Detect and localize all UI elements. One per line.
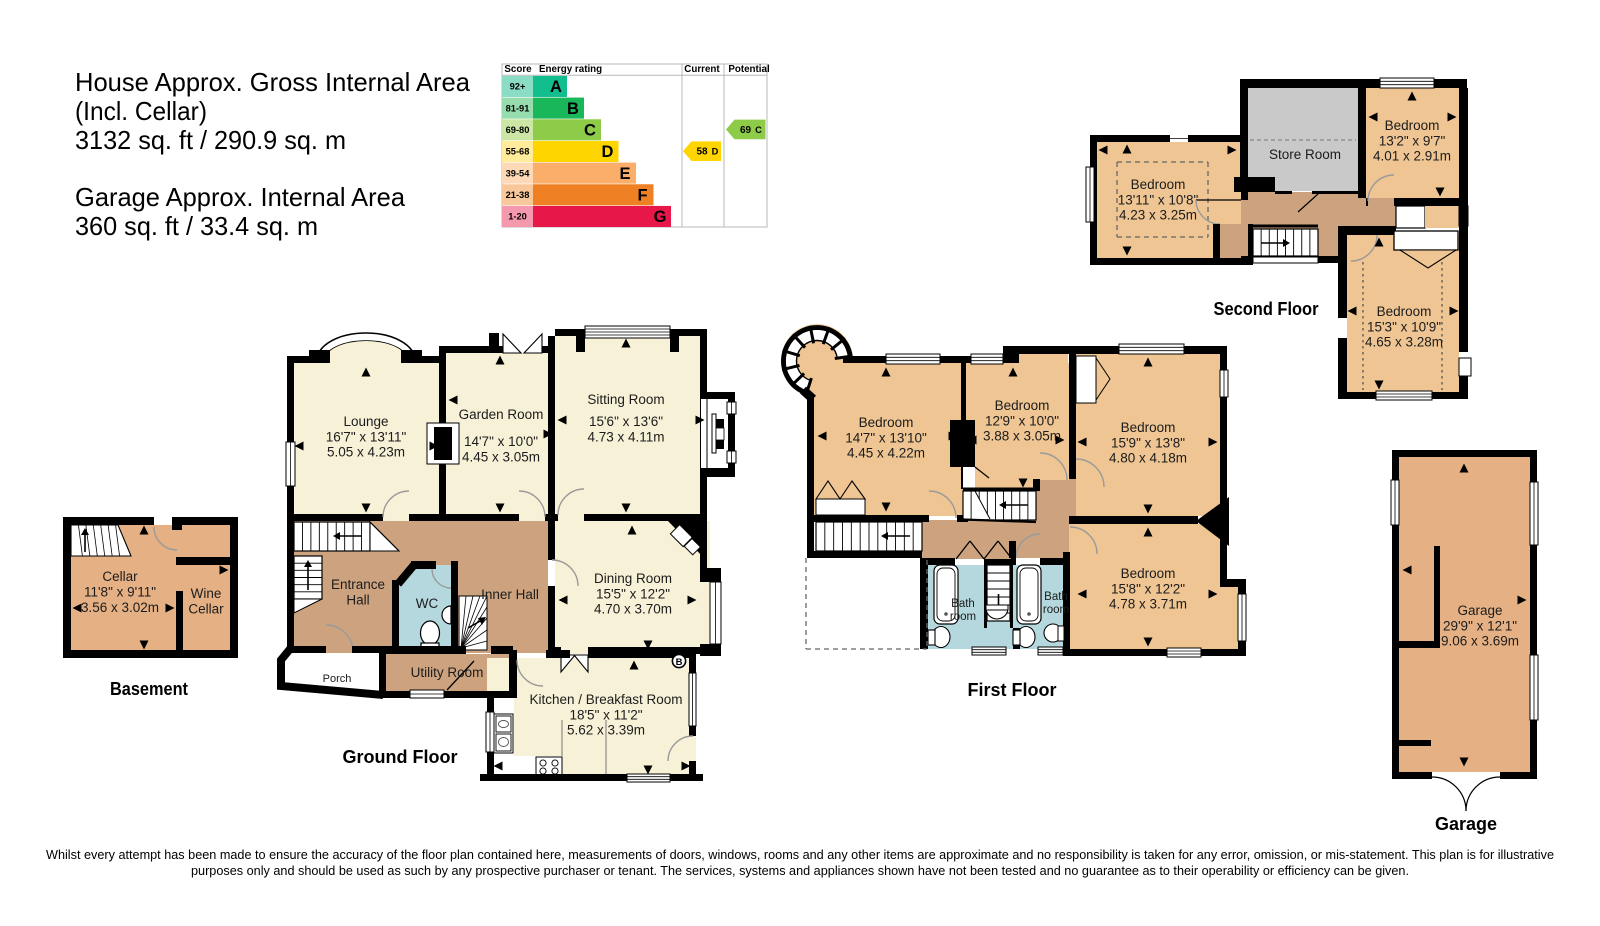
svg-text:Garage Approx. Internal Area: Garage Approx. Internal Area [75,182,406,212]
svg-text:F: F [637,186,647,204]
svg-text:Garage: Garage [1457,603,1502,618]
svg-text:purposes only and should be us: purposes only and should be used as such… [191,863,1409,878]
svg-text:room: room [1043,604,1069,616]
svg-text:Garage: Garage [1435,814,1497,834]
svg-text:4.45 x 4.22m: 4.45 x 4.22m [847,446,925,461]
svg-text:Bedroom: Bedroom [859,415,914,430]
svg-text:Wine: Wine [191,586,222,601]
svg-text:Cellar: Cellar [188,602,224,617]
svg-text:B: B [676,657,683,668]
svg-text:D: D [712,147,719,157]
svg-text:Inner Hall: Inner Hall [481,587,539,602]
svg-text:Bedroom: Bedroom [1385,118,1440,133]
svg-text:Bath: Bath [951,598,975,610]
svg-text:81-91: 81-91 [506,103,530,113]
svg-text:69-80: 69-80 [506,125,530,135]
svg-text:4.70 x 3.70m: 4.70 x 3.70m [594,602,672,617]
svg-text:Store Room: Store Room [1269,147,1341,162]
svg-text:15'9" x 13'8": 15'9" x 13'8" [1111,435,1185,450]
svg-text:16'7" x 13'11": 16'7" x 13'11" [326,429,407,444]
svg-text:Bedroom: Bedroom [1131,177,1186,192]
svg-text:3.56 x 3.02m: 3.56 x 3.02m [81,600,159,615]
svg-text:Basement: Basement [110,679,188,699]
svg-text:Sitting Room: Sitting Room [587,392,664,407]
svg-text:Score: Score [504,64,532,75]
svg-text:Energy rating: Energy rating [539,64,602,75]
svg-text:D: D [602,143,614,161]
svg-text:Whilst every attempt has been: Whilst every attempt has been made to en… [46,847,1554,862]
svg-text:39-54: 39-54 [506,168,531,178]
svg-text:G: G [654,208,667,226]
svg-text:360 sq. ft / 33.4 sq. m: 360 sq. ft / 33.4 sq. m [75,211,318,241]
svg-text:Current: Current [684,64,720,75]
svg-text:Second Floor: Second Floor [1214,299,1319,319]
svg-text:4.78 x 3.71m: 4.78 x 3.71m [1109,597,1187,612]
svg-text:14'7" x 13'10": 14'7" x 13'10" [845,430,927,445]
svg-text:3.88 x 3.05m: 3.88 x 3.05m [983,429,1061,444]
svg-text:Bedroom: Bedroom [1377,304,1432,319]
svg-text:B: B [567,100,579,118]
svg-text:13'11" x 10'8": 13'11" x 10'8" [1118,192,1199,207]
svg-text:Porch: Porch [323,673,352,685]
svg-text:Bedroom: Bedroom [995,398,1050,413]
svg-text:First Floor: First Floor [968,680,1057,700]
svg-text:4.23 x 3.25m: 4.23 x 3.25m [1119,208,1197,223]
svg-text:Potential: Potential [728,64,770,75]
svg-text:(Incl. Cellar): (Incl. Cellar) [75,96,207,126]
svg-text:A: A [550,78,562,96]
svg-text:Lounge: Lounge [343,414,388,429]
svg-text:4.65 x 3.28m: 4.65 x 3.28m [1365,335,1443,350]
svg-text:58: 58 [696,147,708,158]
svg-text:Bedroom: Bedroom [1121,566,1176,581]
svg-text:room: room [950,611,976,623]
svg-text:13'2" x 9'7": 13'2" x 9'7" [1379,133,1446,148]
svg-text:4.73 x 4.11m: 4.73 x 4.11m [587,429,664,444]
svg-text:C: C [584,121,596,139]
svg-text:4.45 x 3.05m: 4.45 x 3.05m [462,449,540,464]
svg-text:Hall: Hall [346,592,369,607]
svg-text:Entrance: Entrance [331,577,385,592]
svg-text:Garden Room: Garden Room [459,407,544,422]
svg-text:Utility Room: Utility Room [411,665,484,680]
svg-text:4.80 x 4.18m: 4.80 x 4.18m [1109,451,1187,466]
svg-text:Kitchen / Breakfast Room: Kitchen / Breakfast Room [529,692,682,707]
svg-text:92+: 92+ [510,82,526,92]
svg-text:Bedroom: Bedroom [1121,420,1176,435]
svg-text:9.06 x 3.69m: 9.06 x 3.69m [1441,634,1519,649]
svg-text:E: E [619,165,630,183]
svg-text:C: C [755,125,762,135]
svg-text:3132 sq. ft / 290.9 sq. m: 3132 sq. ft / 290.9 sq. m [75,125,346,155]
svg-text:5.05 x 4.23m: 5.05 x 4.23m [327,445,405,460]
svg-text:Cellar: Cellar [102,569,138,584]
svg-text:Dining Room: Dining Room [594,571,672,586]
svg-text:18'5" x 11'2": 18'5" x 11'2" [569,707,642,722]
svg-text:Bath: Bath [1044,591,1068,603]
svg-text:15'3" x 10'9": 15'3" x 10'9" [1367,319,1441,334]
svg-text:69: 69 [740,125,752,136]
svg-text:WC: WC [416,596,439,611]
svg-text:11'8" x 9'11": 11'8" x 9'11" [84,585,156,600]
svg-text:14'7" x 10'0": 14'7" x 10'0" [464,434,538,449]
svg-text:55-68: 55-68 [506,147,530,157]
svg-text:15'8" x 12'2": 15'8" x 12'2" [1111,581,1185,596]
svg-text:29'9" x 12'1": 29'9" x 12'1" [1443,618,1517,633]
svg-text:5.62 x 3.39m: 5.62 x 3.39m [567,723,645,738]
svg-text:12'9" x 10'0": 12'9" x 10'0" [985,413,1059,428]
svg-text:4.01 x 2.91m: 4.01 x 2.91m [1373,149,1451,164]
svg-text:House Approx. Gross Internal A: House Approx. Gross Internal Area [75,67,471,97]
svg-text:21-38: 21-38 [506,190,530,200]
svg-text:1-20: 1-20 [508,212,527,222]
svg-text:15'5" x 12'2": 15'5" x 12'2" [596,586,670,601]
svg-text:Ground Floor: Ground Floor [343,747,458,767]
svg-text:15'6" x 13'6": 15'6" x 13'6" [589,414,663,429]
